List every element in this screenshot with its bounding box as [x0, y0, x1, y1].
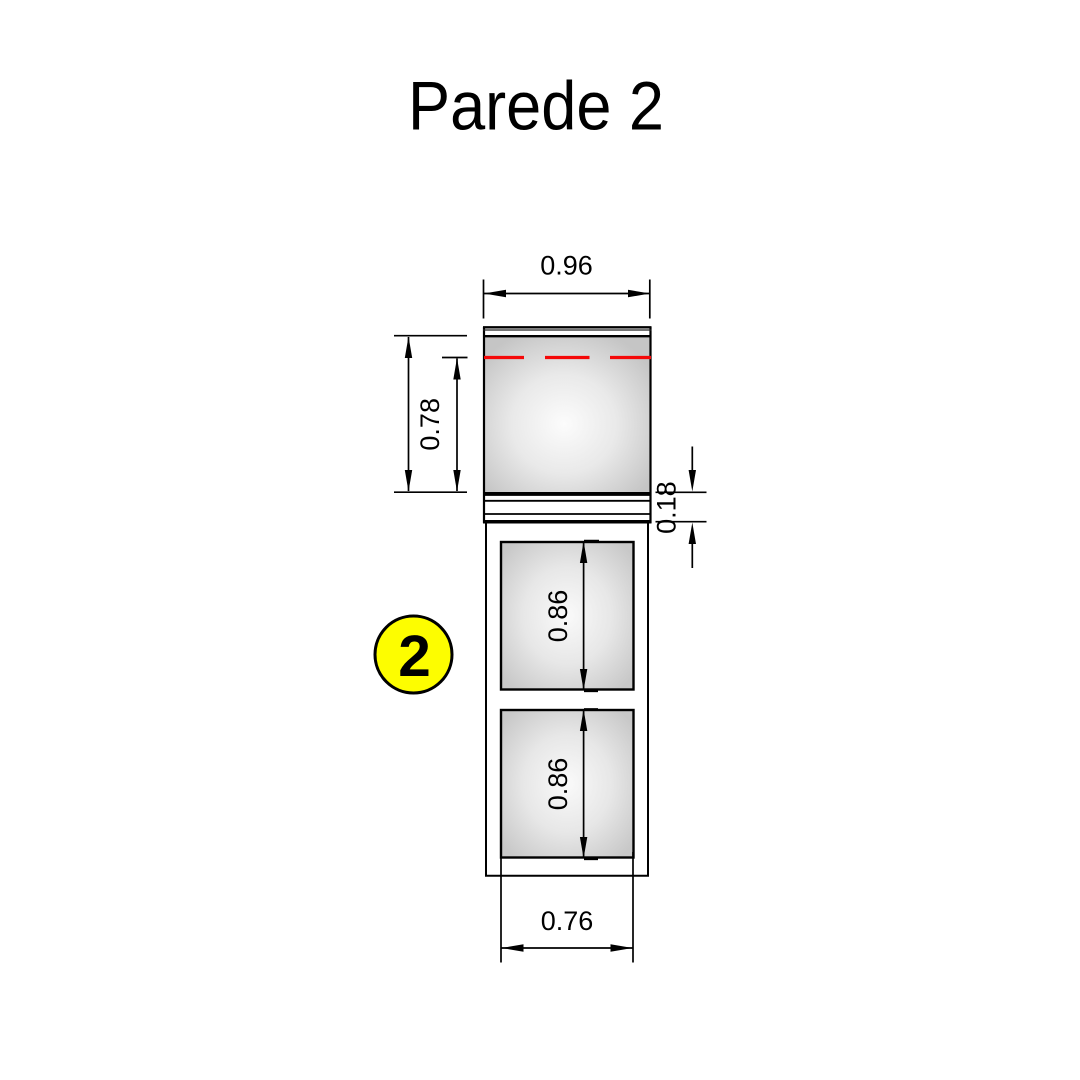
svg-text:0.86: 0.86: [543, 758, 573, 811]
svg-text:2: 2: [398, 624, 431, 689]
svg-text:0.86: 0.86: [543, 590, 573, 643]
svg-text:0.78: 0.78: [415, 398, 445, 451]
svg-text:0.76: 0.76: [541, 906, 594, 936]
svg-text:Parede 2: Parede 2: [408, 68, 664, 145]
svg-text:0.96: 0.96: [540, 251, 593, 281]
svg-text:0.18: 0.18: [651, 481, 681, 534]
